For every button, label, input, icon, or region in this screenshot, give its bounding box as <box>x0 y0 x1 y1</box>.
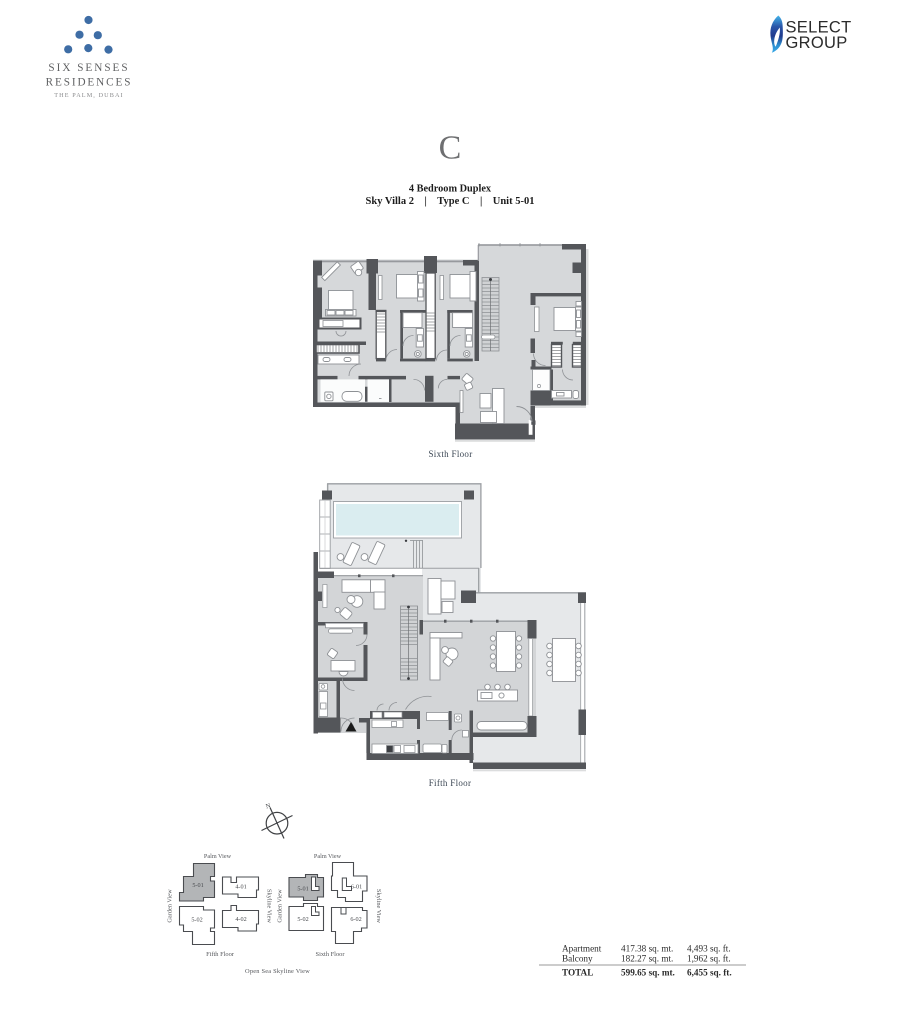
svg-text:RESIDENCES: RESIDENCES <box>46 77 133 89</box>
svg-text:C: C <box>439 130 462 167</box>
svg-text:Garden View: Garden View <box>167 889 174 923</box>
svg-text:Palm View: Palm View <box>204 853 232 860</box>
svg-text:Palm View: Palm View <box>314 853 342 860</box>
svg-text:N: N <box>265 802 272 810</box>
svg-text:Skyline View: Skyline View <box>266 889 273 923</box>
svg-text:599.65 sq. mt.: 599.65 sq. mt. <box>621 968 675 978</box>
svg-text:GROUP: GROUP <box>786 34 848 52</box>
svg-text:6-02: 6-02 <box>350 916 361 923</box>
svg-text:Sky Villa 2 | Type C: Sky Villa 2 | Type C | Unit 5-01 <box>366 196 535 207</box>
svg-text:5-01: 5-01 <box>297 886 308 893</box>
svg-text:6-01: 6-01 <box>351 884 362 891</box>
svg-text:Skyline View: Skyline View <box>375 889 382 923</box>
svg-text:5-02: 5-02 <box>191 917 202 924</box>
svg-text:182.27 sq. mt.: 182.27 sq. mt. <box>621 954 673 964</box>
svg-text:Open Sea Skyline View: Open Sea Skyline View <box>245 968 310 975</box>
svg-text:SIX SENSES: SIX SENSES <box>48 62 129 74</box>
svg-text:417.38 sq. mt.: 417.38 sq. mt. <box>621 944 673 954</box>
svg-text:1,962 sq. ft.: 1,962 sq. ft. <box>687 954 731 964</box>
svg-text:5-02: 5-02 <box>297 916 308 923</box>
svg-text:4 Bedroom Duplex: 4 Bedroom Duplex <box>409 184 492 195</box>
svg-text:Garden View: Garden View <box>277 889 284 923</box>
svg-text:Apartment: Apartment <box>562 944 602 954</box>
svg-text:4-02: 4-02 <box>235 916 246 923</box>
svg-text:Sixth Floor: Sixth Floor <box>316 951 346 958</box>
svg-text:4-01: 4-01 <box>235 884 246 891</box>
svg-text:4,493 sq. ft.: 4,493 sq. ft. <box>687 944 731 954</box>
svg-text:6,455 sq. ft.: 6,455 sq. ft. <box>687 968 732 978</box>
svg-text:Sixth Floor: Sixth Floor <box>428 449 472 459</box>
svg-text:Balcony: Balcony <box>562 954 593 964</box>
svg-text:THE PALM, DUBAI: THE PALM, DUBAI <box>54 92 123 99</box>
svg-text:5-01: 5-01 <box>192 882 203 889</box>
svg-text:TOTAL: TOTAL <box>562 968 593 978</box>
svg-text:Fifth Floor: Fifth Floor <box>206 951 235 958</box>
svg-text:Fifth Floor: Fifth Floor <box>429 778 472 788</box>
